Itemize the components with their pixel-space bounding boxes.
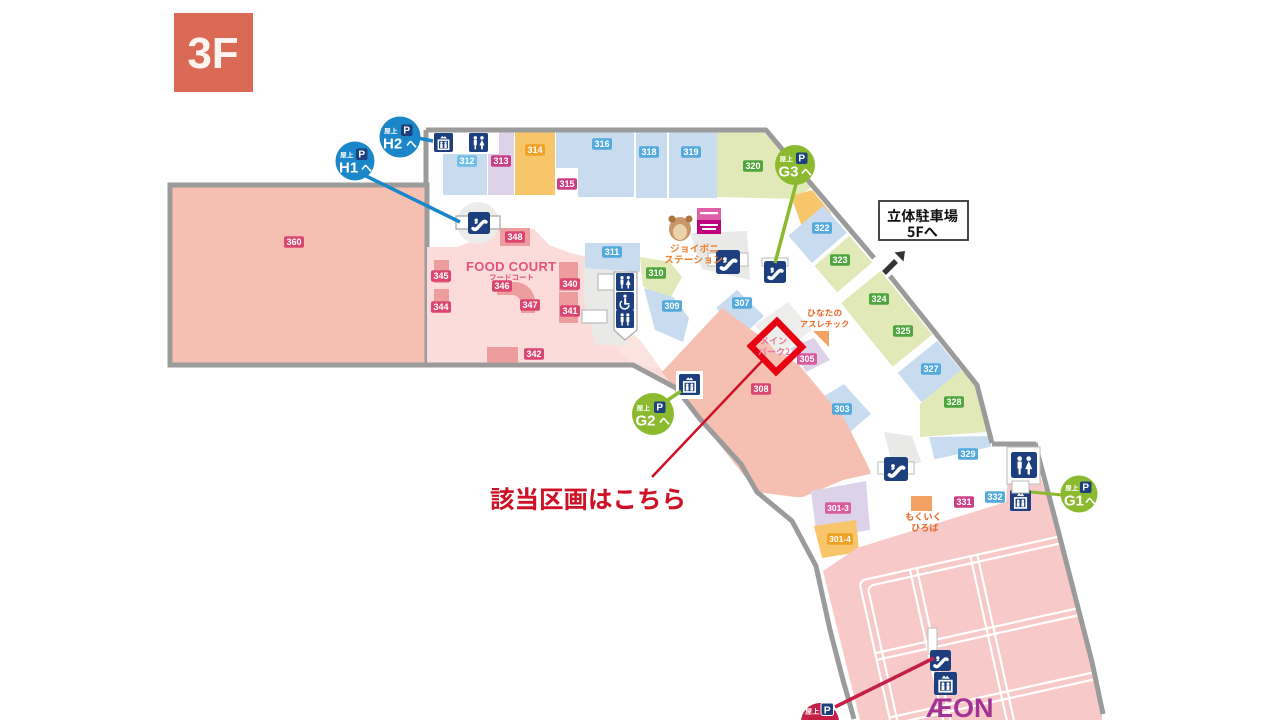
svg-text:315: 315 bbox=[559, 179, 574, 189]
svg-text:340: 340 bbox=[562, 279, 577, 289]
svg-text:G3: G3 bbox=[779, 164, 799, 181]
svg-text:331: 331 bbox=[956, 497, 971, 507]
svg-text:310: 310 bbox=[648, 268, 663, 278]
svg-text:324: 324 bbox=[871, 294, 886, 304]
svg-text:303: 303 bbox=[834, 404, 849, 414]
svg-text:H1: H1 bbox=[339, 160, 358, 177]
svg-text:328: 328 bbox=[946, 397, 961, 407]
svg-text:325: 325 bbox=[895, 326, 910, 336]
svg-text:318: 318 bbox=[641, 147, 656, 157]
svg-text:360: 360 bbox=[286, 237, 301, 247]
svg-text:ÆON: ÆON bbox=[926, 693, 994, 720]
svg-text:322: 322 bbox=[814, 223, 829, 233]
svg-text:G1: G1 bbox=[1064, 493, 1084, 510]
svg-text:311: 311 bbox=[605, 247, 620, 257]
svg-text:3F: 3F bbox=[187, 29, 238, 78]
svg-text:314: 314 bbox=[527, 145, 542, 155]
svg-text:P: P bbox=[656, 403, 663, 414]
svg-text:316: 316 bbox=[594, 139, 609, 149]
svg-text:329: 329 bbox=[960, 449, 975, 459]
svg-text:323: 323 bbox=[832, 255, 847, 265]
svg-text:345: 345 bbox=[433, 271, 448, 281]
svg-text:347: 347 bbox=[522, 300, 537, 310]
svg-text:308: 308 bbox=[753, 384, 768, 394]
svg-text:313: 313 bbox=[493, 156, 508, 166]
svg-text:H2: H2 bbox=[383, 136, 402, 153]
svg-text:327: 327 bbox=[923, 364, 938, 374]
svg-text:301-4: 301-4 bbox=[829, 534, 851, 544]
svg-text:P: P bbox=[798, 154, 805, 165]
svg-text:332: 332 bbox=[987, 492, 1002, 502]
svg-text:344: 344 bbox=[433, 302, 448, 312]
svg-text:320: 320 bbox=[745, 161, 760, 171]
svg-text:346: 346 bbox=[494, 281, 509, 291]
svg-text:307: 307 bbox=[734, 298, 749, 308]
svg-text:309: 309 bbox=[664, 301, 679, 311]
svg-text:342: 342 bbox=[526, 349, 541, 359]
svg-text:348: 348 bbox=[507, 232, 522, 242]
svg-text:FOOD COURT: FOOD COURT bbox=[466, 259, 556, 274]
svg-text:312: 312 bbox=[459, 156, 474, 166]
svg-text:P: P bbox=[403, 126, 410, 137]
svg-text:301-3: 301-3 bbox=[827, 503, 849, 513]
svg-text:341: 341 bbox=[562, 306, 577, 316]
svg-text:P: P bbox=[358, 150, 365, 161]
svg-text:305: 305 bbox=[799, 354, 814, 364]
svg-text:G2: G2 bbox=[636, 413, 656, 430]
svg-text:P: P bbox=[824, 705, 831, 717]
svg-text:319: 319 bbox=[683, 147, 698, 157]
